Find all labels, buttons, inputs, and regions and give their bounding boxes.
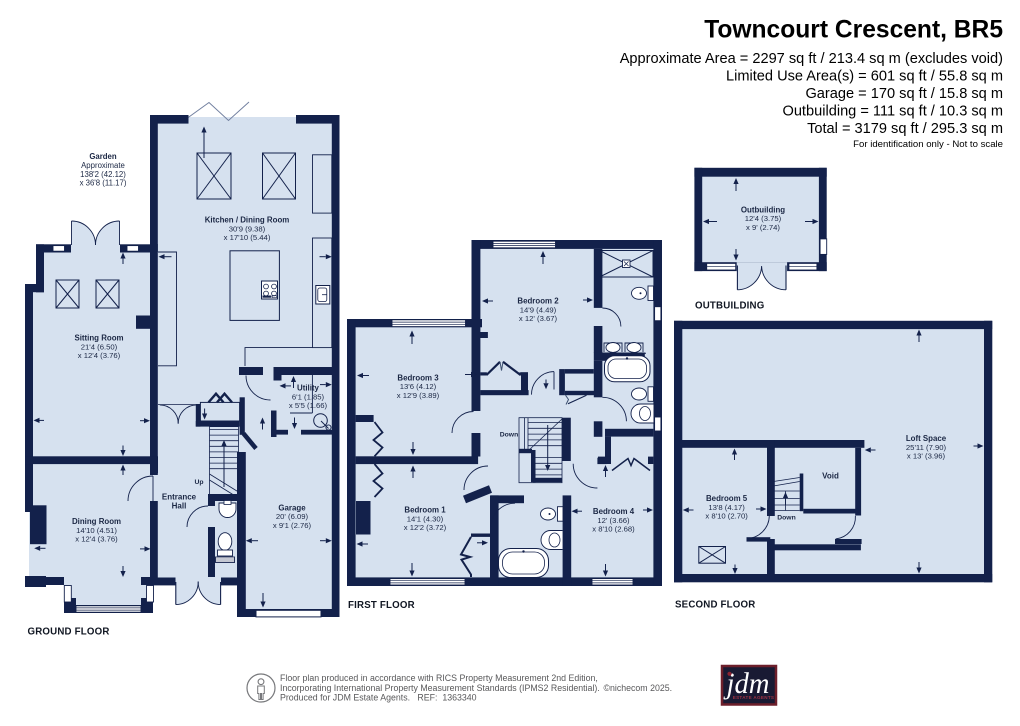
svg-text:Down: Down xyxy=(500,432,519,439)
svg-text:20' (6.09): 20' (6.09) xyxy=(276,512,309,521)
svg-text:13'6 (4.12): 13'6 (4.12) xyxy=(400,382,437,391)
svg-text:21'4 (6.50): 21'4 (6.50) xyxy=(81,342,118,351)
svg-text:Sitting Room: Sitting Room xyxy=(74,334,123,343)
svg-text:Approximate Area = 2297 sq ft: Approximate Area = 2297 sq ft / 213.4 sq… xyxy=(620,51,1003,67)
svg-text:14'1 (4.30): 14'1 (4.30) xyxy=(407,514,444,523)
svg-text:Hall: Hall xyxy=(172,501,187,510)
svg-text:Down: Down xyxy=(777,515,796,522)
svg-text:x 36'8 (11.17): x 36'8 (11.17) xyxy=(80,179,127,188)
svg-text:Towncourt Crescent, BR5: Towncourt Crescent, BR5 xyxy=(704,17,1003,44)
svg-text:Utility: Utility xyxy=(297,384,320,393)
svg-text:x 12'4 (3.76): x 12'4 (3.76) xyxy=(78,351,121,360)
svg-text:Garage = 170 sq ft / 15.8 sq m: Garage = 170 sq ft / 15.8 sq m xyxy=(805,86,1003,102)
svg-text:25'11 (7.90): 25'11 (7.90) xyxy=(906,443,947,452)
svg-text:Bedroom 3: Bedroom 3 xyxy=(397,373,439,382)
svg-text:Bedroom 1: Bedroom 1 xyxy=(404,506,446,515)
svg-text:Void: Void xyxy=(822,472,839,481)
svg-text:Bedroom 2: Bedroom 2 xyxy=(517,297,559,306)
svg-text:x 8'10 (2.68): x 8'10 (2.68) xyxy=(592,525,635,534)
svg-text:14'9 (4.49): 14'9 (4.49) xyxy=(520,305,557,314)
svg-text:x 8'10 (2.70): x 8'10 (2.70) xyxy=(705,512,748,521)
svg-text:Bedroom 4: Bedroom 4 xyxy=(593,507,635,516)
svg-text:x 12'9 (3.89): x 12'9 (3.89) xyxy=(397,391,440,400)
svg-text:Bedroom 5: Bedroom 5 xyxy=(706,494,748,503)
svg-text:Produced for JDM Estate Agents: Produced for JDM Estate Agents. REF: 136… xyxy=(280,693,477,703)
svg-text:Approximate: Approximate xyxy=(81,161,125,170)
svg-text:12' (3.66): 12' (3.66) xyxy=(597,516,630,525)
svg-text:GROUND FLOOR: GROUND FLOOR xyxy=(28,627,110,638)
svg-text:x 9'1 (2.76): x 9'1 (2.76) xyxy=(273,521,312,530)
svg-text:©nichecom 2025.: ©nichecom 2025. xyxy=(604,683,673,693)
svg-text:x 17'10 (5.44): x 17'10 (5.44) xyxy=(224,233,271,242)
svg-text:138'2 (42.12): 138'2 (42.12) xyxy=(80,170,126,179)
svg-text:x 5'5 (1.66): x 5'5 (1.66) xyxy=(289,401,328,410)
svg-text:x 12'2 (3.72): x 12'2 (3.72) xyxy=(404,523,447,532)
svg-text:x 12' (3.67): x 12' (3.67) xyxy=(519,314,558,323)
svg-text:Dining Room: Dining Room xyxy=(72,517,121,526)
svg-text:Garden: Garden xyxy=(89,152,117,161)
svg-text:Outbuilding: Outbuilding xyxy=(741,205,785,214)
svg-text:12'4 (3.75): 12'4 (3.75) xyxy=(745,214,782,223)
svg-text:14'10 (4.51): 14'10 (4.51) xyxy=(76,526,117,535)
svg-text:Loft Space: Loft Space xyxy=(906,434,947,443)
svg-text:OUTBUILDING: OUTBUILDING xyxy=(695,301,764,312)
svg-text:Total = 3179 sq ft / 295.3 sq: Total = 3179 sq ft / 295.3 sq m xyxy=(807,121,1003,137)
svg-text:Garage: Garage xyxy=(278,503,306,512)
svg-text:ESTATE AGENTS: ESTATE AGENTS xyxy=(733,695,775,700)
svg-text:FIRST FLOOR: FIRST FLOOR xyxy=(348,600,415,611)
svg-text:Limited Use Area(s) = 601 sq f: Limited Use Area(s) = 601 sq ft / 55.8 s… xyxy=(726,69,1003,85)
svg-text:For identification only - Not: For identification only - Not to scale xyxy=(853,139,1003,150)
svg-text:13'8 (4.17): 13'8 (4.17) xyxy=(708,503,745,512)
svg-text:Entrance: Entrance xyxy=(162,493,197,502)
svg-text:x 9' (2.74): x 9' (2.74) xyxy=(746,223,780,232)
svg-text:x 12'4 (3.76): x 12'4 (3.76) xyxy=(75,535,118,544)
svg-text:x 13' (3.96): x 13' (3.96) xyxy=(907,452,946,461)
svg-text:30'9 (9.38): 30'9 (9.38) xyxy=(229,224,266,233)
svg-text:Up: Up xyxy=(194,479,203,486)
svg-text:Outbuilding = 111 sq ft / 10.3: Outbuilding = 111 sq ft / 10.3 sq m xyxy=(782,104,1003,120)
svg-text:Floor plan produced in accorda: Floor plan produced in accordance with R… xyxy=(280,673,598,683)
svg-text:SECOND FLOOR: SECOND FLOOR xyxy=(675,600,755,611)
svg-text:Incorporating International Pr: Incorporating International Property Mea… xyxy=(280,683,600,693)
svg-text:6'1 (1.85): 6'1 (1.85) xyxy=(292,392,325,401)
svg-text:Kitchen / Dining Room: Kitchen / Dining Room xyxy=(205,216,290,225)
